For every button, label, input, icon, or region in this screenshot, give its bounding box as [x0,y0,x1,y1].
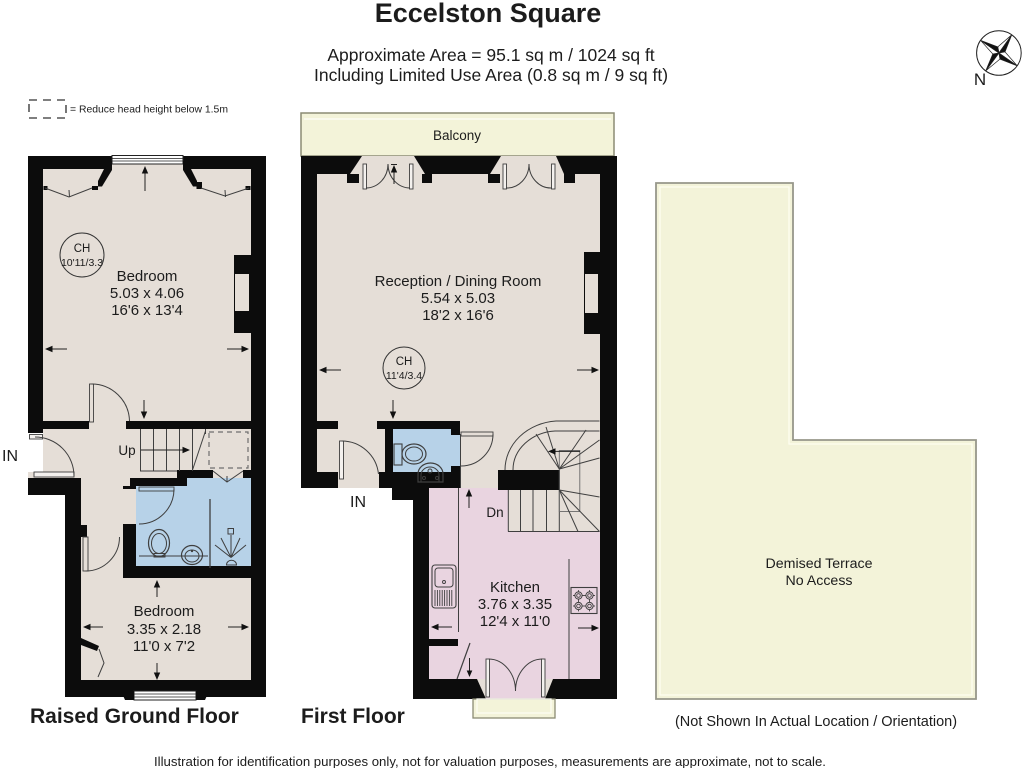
svg-text:CH: CH [74,243,91,255]
svg-text:Balcony: Balcony [433,128,481,143]
svg-text:Bedroom: Bedroom [134,603,195,620]
svg-text:First Floor: First Floor [301,705,405,728]
svg-text:5.03 x 4.06: 5.03 x 4.06 [110,285,184,302]
svg-text:CH: CH [396,356,413,368]
svg-text:No Access: No Access [785,573,852,589]
svg-text:11'0 x 7'2: 11'0 x 7'2 [133,638,195,655]
svg-text:Reception / Dining Room: Reception / Dining Room [375,273,542,290]
svg-text:Up: Up [118,443,135,458]
svg-text:Raised Ground Floor: Raised Ground Floor [30,705,239,728]
svg-text:Demised Terrace: Demised Terrace [766,556,873,572]
svg-text:IN: IN [2,448,18,465]
svg-text:Approximate Area = 95.1 sq m /: Approximate Area = 95.1 sq m / 1024 sq f… [327,45,654,65]
svg-text:Illustration for identificatio: Illustration for identification purposes… [154,754,826,768]
svg-text:(Not Shown In Actual Location: (Not Shown In Actual Location / Orientat… [675,714,957,730]
svg-text:11'4/3.4: 11'4/3.4 [386,370,422,382]
svg-text:12'4 x 11'0: 12'4 x 11'0 [480,613,551,630]
svg-text:Eccelston Square: Eccelston Square [375,0,602,28]
svg-text:IN: IN [350,494,366,511]
svg-text:3.76 x 3.35: 3.76 x 3.35 [478,596,552,613]
svg-text:10'11/3.3: 10'11/3.3 [61,257,103,269]
svg-text:5.54 x 5.03: 5.54 x 5.03 [421,290,495,307]
svg-text:Kitchen: Kitchen [490,579,540,596]
svg-text:16'6 x 13'4: 16'6 x 13'4 [111,302,183,319]
svg-text:Including Limited Use Area (0.: Including Limited Use Area (0.8 sq m / 9… [314,65,668,85]
svg-text:18'2 x 16'6: 18'2 x 16'6 [422,307,494,324]
svg-text:Bedroom: Bedroom [117,268,178,285]
svg-text:N: N [974,70,986,89]
svg-text:3.35 x 2.18: 3.35 x 2.18 [127,621,201,638]
svg-text:= Reduce head height below 1.5: = Reduce head height below 1.5m [70,105,228,116]
svg-text:Dn: Dn [486,505,503,520]
